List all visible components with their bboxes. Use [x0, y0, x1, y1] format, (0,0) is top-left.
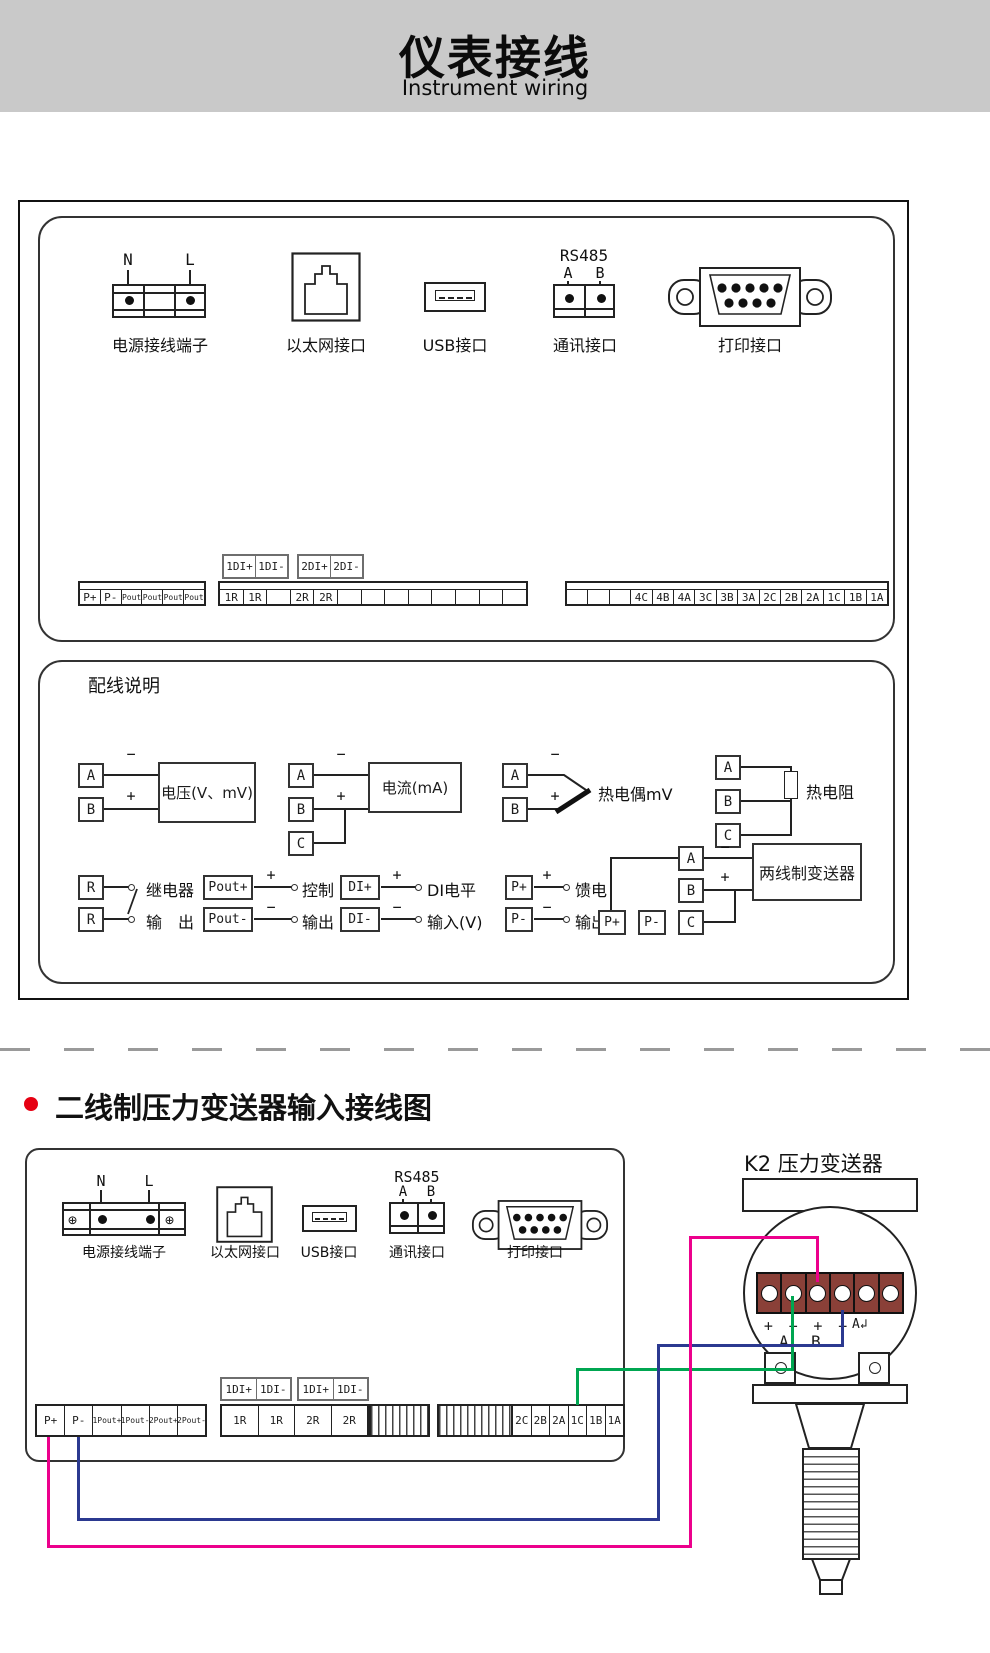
k2-transmitter-label: K2 压力变送器: [744, 1148, 883, 1178]
polarity-plus: +: [390, 866, 404, 884]
polarity-minus: −: [390, 898, 404, 916]
contact-circle: [563, 916, 570, 923]
power-terminal-label: 电源接线端子: [104, 332, 216, 356]
terminal-cell: P-: [100, 590, 121, 604]
wire-line: [254, 886, 292, 888]
screw-icon: ⊕: [68, 1211, 77, 1229]
terminal-cell: [361, 590, 385, 604]
terminal-p-minus: P-: [638, 910, 666, 935]
terminal-cell: 2R: [331, 1406, 368, 1435]
wire-line: [104, 886, 130, 888]
polarity-plus: +: [718, 868, 732, 886]
usb-pin: [315, 1218, 320, 1220]
terminal-p-minus: P-: [505, 907, 533, 932]
terminal-cell: P+: [37, 1406, 64, 1435]
terminal-dot: [400, 1211, 409, 1220]
terminal-cell: 2R: [294, 1406, 331, 1435]
power-pin-n: N: [116, 250, 140, 269]
blue-wire: [657, 1344, 844, 1347]
rs485-title: RS485: [556, 246, 612, 265]
terminal-screw: [829, 1274, 853, 1312]
terminal-cell: [266, 590, 290, 604]
power-pin-l: L: [178, 250, 202, 269]
terminal-cell: 1C: [823, 590, 844, 604]
terminal-cell: [455, 590, 479, 604]
terminal-cell: 2R: [313, 590, 337, 604]
terminal-cell: 3A: [737, 590, 758, 604]
page: 仪表接线 Instrument wiring N L 电源接线端子 以太网接口 …: [0, 0, 990, 1653]
terminal-pout-plus: Pout+: [203, 875, 253, 900]
power-pin-l: L: [137, 1172, 161, 1190]
terminal-r2: R: [78, 907, 104, 932]
comm-pin-b: B: [422, 1184, 440, 1200]
di-group2: 1DI+1DI-: [297, 1377, 369, 1401]
relay-label-1: 继电器: [146, 877, 208, 901]
resistor-icon: [784, 771, 798, 799]
green-wire: [576, 1368, 794, 1371]
terminal-p-plus: P+: [505, 875, 533, 900]
di-terminal-label: 1DI-: [256, 1379, 291, 1399]
power-terminal-icon: [112, 284, 206, 318]
terminal-b: B: [288, 797, 314, 822]
wiring-guide-title: 配线说明: [88, 672, 178, 698]
usb-pin: [457, 297, 463, 299]
terminal-row-left: P+P-1Pout+1Pout-2Pout+2Pout-: [35, 1404, 207, 1437]
terminal-cell: 1A: [605, 1406, 624, 1435]
usb-port-icon: [302, 1205, 357, 1232]
terminal-cell: [431, 590, 455, 604]
di-group1: 1DI+1DI-: [222, 554, 289, 579]
terminal-a: A: [502, 763, 528, 788]
db9-port-icon: [660, 262, 840, 332]
di-terminal-label: 2DI+: [299, 556, 330, 577]
terminal-b: B: [678, 878, 704, 903]
di-label-1: DI电平: [427, 877, 497, 901]
power-pin-n: N: [89, 1172, 113, 1190]
terminal-a: A: [288, 763, 314, 788]
usb-pin: [323, 1218, 328, 1220]
wire-line: [314, 842, 346, 844]
di-terminal-label: 1DI-: [333, 1379, 368, 1399]
di-terminal-label: 1DI+: [222, 1379, 256, 1399]
usb-slot: [312, 1212, 347, 1222]
polarity-plus: +: [334, 787, 348, 805]
terminal-cell: 2B: [780, 590, 801, 604]
di-terminal-label: 1DI+: [224, 556, 255, 577]
terminal-cell: [337, 590, 361, 604]
terminal-cell: [567, 590, 587, 604]
contact-circle: [415, 916, 422, 923]
power-terminal-icon: ⊕ ⊕: [62, 1202, 186, 1236]
comm-label: 通讯接口: [548, 332, 622, 356]
current-device-box: 电流(mA): [368, 762, 462, 813]
terminal-row-left: P+P-1Pout+1Pout-2Pout+2Pout-: [78, 581, 206, 606]
terminal-screw: [878, 1274, 902, 1312]
di-label-2: 输入(V): [427, 909, 497, 933]
terminal-cell: 2Pout-: [177, 1406, 205, 1435]
screw-icon: ⊕: [165, 1211, 174, 1229]
mounting-bolt-icon: [858, 1352, 890, 1384]
rtd-label: 热电阻: [806, 779, 876, 803]
terminal-cell: 2Pout+: [149, 1406, 177, 1435]
terminal-cell: 2A: [801, 590, 822, 604]
polarity-minus: −: [548, 745, 562, 763]
terminal-strip: [567, 583, 887, 590]
terminal-cell: 3C: [694, 590, 715, 604]
header-banner: 仪表接线 Instrument wiring: [0, 0, 990, 112]
contact-circle: [128, 916, 135, 923]
terminal-cell: 4B: [652, 590, 673, 604]
terminal-b: B: [715, 789, 741, 814]
terminal-r1: R: [78, 875, 104, 900]
di-group2: 2DI+2DI-: [297, 554, 364, 579]
terminal-cell: 2B: [531, 1406, 550, 1435]
di-terminal-label: 1DI+: [299, 1379, 333, 1399]
terminal-di-plus: DI+: [340, 875, 380, 900]
control-label-2: 输出: [302, 909, 342, 933]
terminal-dot: [146, 1215, 155, 1224]
polarity-plus: +: [124, 787, 138, 805]
terminal-cell: 1R: [243, 590, 267, 604]
terminal-a: A: [78, 763, 104, 788]
comm-pin-a: A: [394, 1184, 412, 1200]
wire-line: [704, 889, 752, 891]
wire-line: [314, 774, 368, 776]
terminal-dot: [125, 296, 134, 305]
terminal-cell: 1B: [586, 1406, 605, 1435]
usb-pin: [448, 297, 454, 299]
transmitter-term-b: B: [811, 1332, 821, 1351]
di-group1: 1DI+1DI-: [220, 1377, 292, 1401]
contact-circle: [415, 884, 422, 891]
wire-line: [741, 800, 792, 802]
transmitter2w-device-box: 两线制变送器: [752, 843, 862, 901]
terminal-cell: 1R: [220, 590, 243, 604]
terminal-cell: [502, 590, 526, 604]
terminal-line: [89, 1204, 91, 1234]
terminal-c: C: [678, 910, 704, 935]
terminal-a-return: A↲: [852, 1317, 868, 1332]
terminal-cell: 1Pout-: [141, 590, 162, 604]
blue-wire: [77, 1518, 660, 1521]
terminal-cell: 2C: [513, 1406, 531, 1435]
terminal-p-plus: P+: [598, 910, 626, 935]
terminal-cell: 2Pout-: [183, 590, 204, 604]
polarity-minus: −: [334, 745, 348, 763]
terminal-line: [143, 286, 145, 316]
terminal-cell: 2R: [290, 590, 314, 604]
usb-label: USB接口: [418, 332, 492, 356]
polarity-sign: +: [806, 1317, 831, 1333]
transmitter-base-bar: [752, 1384, 908, 1404]
usb-label: USB接口: [297, 1242, 361, 1262]
pink-wire: [816, 1236, 819, 1282]
polarity-plus: +: [540, 866, 554, 884]
control-label-1: 控制: [302, 877, 342, 901]
pink-wire: [689, 1236, 692, 1548]
terminal-a: A: [678, 846, 704, 871]
pink-wire: [47, 1437, 50, 1548]
terminal-b: B: [78, 797, 104, 822]
green-wire: [576, 1370, 579, 1405]
blue-wire: [841, 1310, 844, 1347]
terminal-row-spare: [437, 1404, 513, 1437]
terminal-cell: [384, 590, 408, 604]
contact-circle: [291, 916, 298, 923]
wire-line: [610, 857, 612, 910]
terminal-pout-minus: Pout-: [203, 907, 253, 932]
terminal-row-right: 4C4B4A3C3B3A2C2B2A1C1B1A: [565, 581, 889, 606]
terminal-cell: [479, 590, 503, 604]
polarity-minus: −: [124, 745, 138, 763]
terminal-line: [174, 286, 176, 316]
terminal-cell: [609, 590, 630, 604]
blue-wire: [77, 1437, 80, 1521]
terminal-cell: P-: [64, 1406, 92, 1435]
terminal-cell: 1R: [222, 1406, 258, 1435]
terminal-cell: [587, 590, 608, 604]
terminal-a: A: [715, 755, 741, 780]
wire-line: [381, 918, 416, 920]
transmitter-tip: [806, 1558, 856, 1600]
terminal-line: [158, 1204, 160, 1234]
contact-circle: [128, 884, 135, 891]
pink-wire: [47, 1545, 692, 1548]
contact-circle: [563, 884, 570, 891]
terminal-row-relay: 1R1R2R2R: [220, 1404, 369, 1437]
contact-circle: [291, 884, 298, 891]
terminal-cell: 1Pout-: [121, 1406, 149, 1435]
terminal-cell: [408, 590, 432, 604]
terminal-cell: 4C: [630, 590, 651, 604]
terminal-line: [114, 309, 204, 311]
terminal-line: [391, 1225, 443, 1227]
wire-line: [704, 857, 752, 859]
terminal-line: [114, 292, 204, 294]
terminal-line: [555, 308, 613, 310]
comm-label: 通讯接口: [385, 1242, 449, 1262]
wire-line: [610, 857, 678, 859]
wire-line: [381, 886, 416, 888]
terminal-row-middle: 1R1R2R2R: [218, 581, 528, 606]
terminal-cell: 1Pout+: [121, 590, 142, 604]
terminal-cell: 1Pout+: [92, 1406, 120, 1435]
polarity-plus: +: [264, 866, 278, 884]
usb-slot: [435, 290, 475, 301]
terminal-cell: 1B: [844, 590, 865, 604]
wire-line: [534, 918, 564, 920]
rs485-terminal-icon: [553, 284, 615, 318]
usb-port-icon: [424, 282, 486, 312]
terminal-line: [584, 286, 586, 316]
blue-wire: [657, 1344, 660, 1521]
green-wire: [791, 1296, 794, 1371]
terminal-b: B: [502, 797, 528, 822]
wire-line: [741, 834, 792, 836]
polarity-minus: −: [540, 898, 554, 916]
wire-line: [534, 886, 564, 888]
terminal-cell: 1C: [568, 1406, 587, 1435]
usb-pin: [439, 297, 445, 299]
terminal-cell: 3B: [716, 590, 737, 604]
transmitter-neck: [788, 1403, 872, 1450]
terminal-strip: [80, 583, 204, 590]
di-terminal-label: 2DI-: [330, 556, 362, 577]
terminal-strip: [220, 583, 526, 590]
terminal-dot: [597, 294, 606, 303]
terminal-cell: 4A: [673, 590, 694, 604]
terminal-cell: 1R: [258, 1406, 295, 1435]
terminal-cell: 2Pout+: [162, 590, 183, 604]
section-divider: [0, 1048, 990, 1051]
comm-pin-b: B: [590, 264, 610, 282]
wire-line: [104, 774, 158, 776]
terminal-line: [417, 1204, 419, 1232]
section2-title: 二线制压力变送器输入接线图: [55, 1085, 432, 1127]
transmitter-terminal-strip: [756, 1272, 904, 1314]
usb-pin: [466, 297, 472, 299]
wire-line: [104, 808, 158, 810]
rs485-terminal-icon: [389, 1202, 445, 1234]
power-terminal-label: 电源接线端子: [75, 1242, 173, 1262]
di-terminal-label: 1DI-: [255, 556, 287, 577]
ethernet-label: 以太网接口: [282, 332, 370, 356]
ethernet-label: 以太网接口: [208, 1242, 282, 1262]
wire-line: [314, 808, 368, 810]
ethernet-port-icon: [216, 1186, 273, 1243]
polarity-minus: −: [718, 838, 732, 856]
terminal-dot: [428, 1211, 437, 1220]
transmitter-term-a: A: [779, 1332, 789, 1351]
relay-label-2: 输 出: [146, 909, 208, 933]
terminal-cell: 2A: [549, 1406, 568, 1435]
terminal-row-channels: 2C2B2A1C1B1A: [511, 1404, 625, 1437]
wire-line: [104, 918, 130, 920]
terminal-c: C: [288, 831, 314, 856]
printer-label: 打印接口: [503, 1242, 567, 1262]
terminal-cell: 2C: [759, 590, 780, 604]
wire-line: [734, 889, 736, 923]
printer-label: 打印接口: [713, 332, 787, 356]
wire-line: [704, 921, 736, 923]
terminal-cell: P+: [80, 590, 100, 604]
terminal-dot: [565, 294, 574, 303]
terminal-di-minus: DI-: [340, 907, 380, 932]
thermocouple-label: 热电偶mV: [598, 781, 708, 805]
polarity-minus: −: [264, 898, 278, 916]
wire-line: [741, 766, 792, 768]
pink-wire: [689, 1236, 819, 1239]
polarity-sign: +: [756, 1317, 781, 1333]
red-bullet-icon: [24, 1097, 38, 1111]
feed-label-1: 馈电: [575, 877, 615, 901]
page-subtitle: Instrument wiring: [0, 76, 990, 100]
transmitter-threaded-stem: [802, 1448, 860, 1560]
terminal-screw: [853, 1274, 877, 1312]
terminal-dot: [98, 1215, 107, 1224]
terminal-cell: 1A: [866, 590, 887, 604]
wire-line: [790, 798, 792, 836]
terminal-dot: [186, 296, 195, 305]
polarity-plus: +: [548, 787, 562, 805]
comm-pin-a: A: [558, 264, 578, 282]
usb-pin: [339, 1218, 344, 1220]
terminal-row-spare: [369, 1404, 430, 1437]
ethernet-port-icon: [291, 252, 361, 322]
wire-line: [254, 918, 292, 920]
voltage-device-box: 电压(V、mV): [158, 762, 256, 823]
usb-pin: [331, 1218, 336, 1220]
terminal-screw: [758, 1274, 780, 1312]
wire-line: [344, 808, 346, 844]
